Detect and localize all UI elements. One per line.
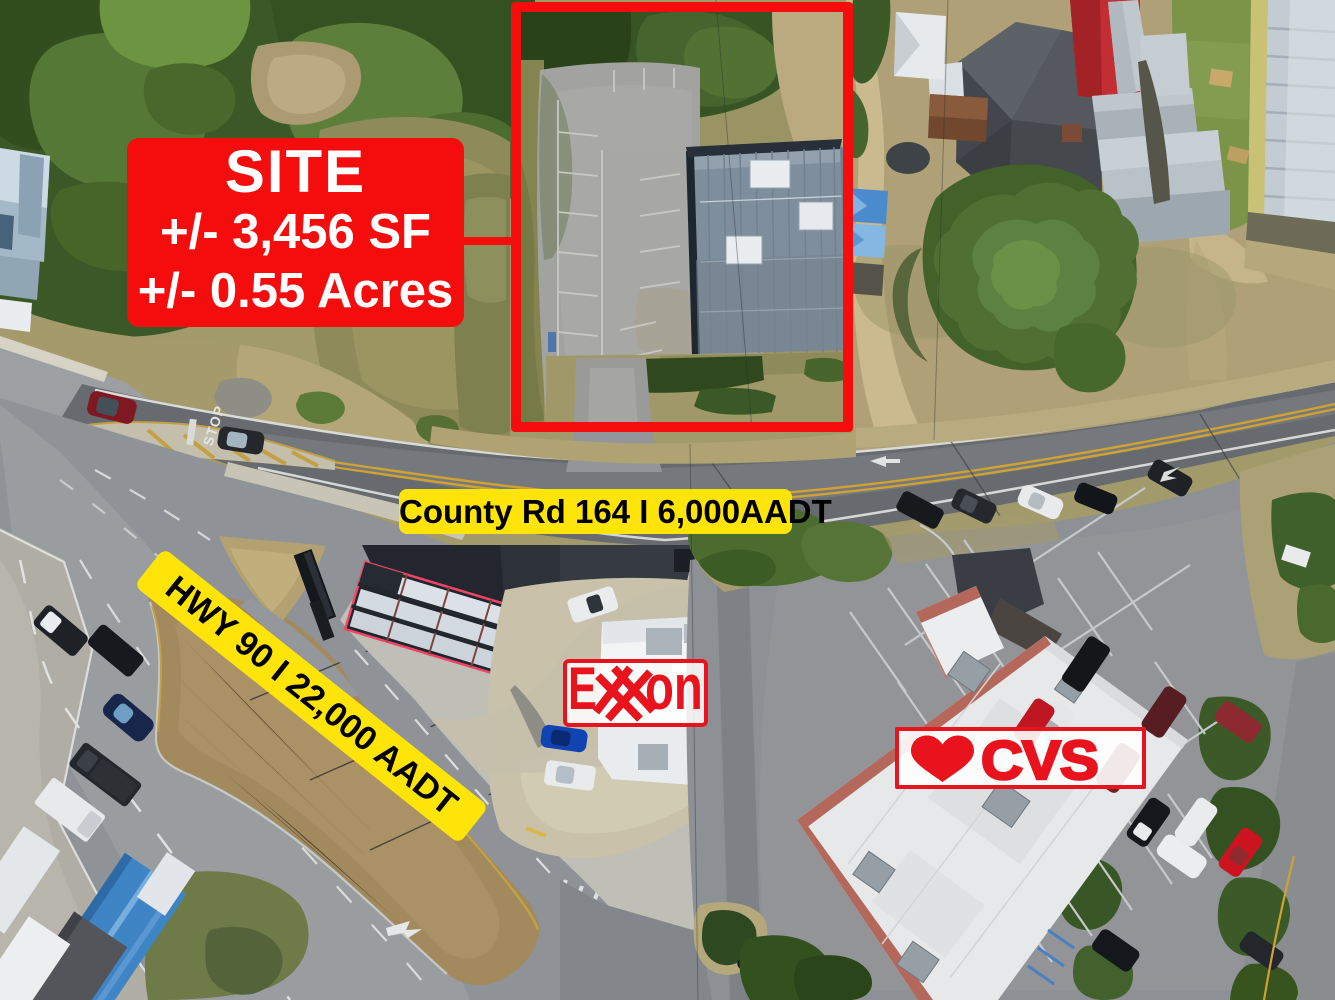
svg-text:on: on bbox=[645, 663, 703, 723]
svg-text:CVS: CVS bbox=[981, 731, 1098, 785]
svg-text:E: E bbox=[568, 663, 597, 723]
